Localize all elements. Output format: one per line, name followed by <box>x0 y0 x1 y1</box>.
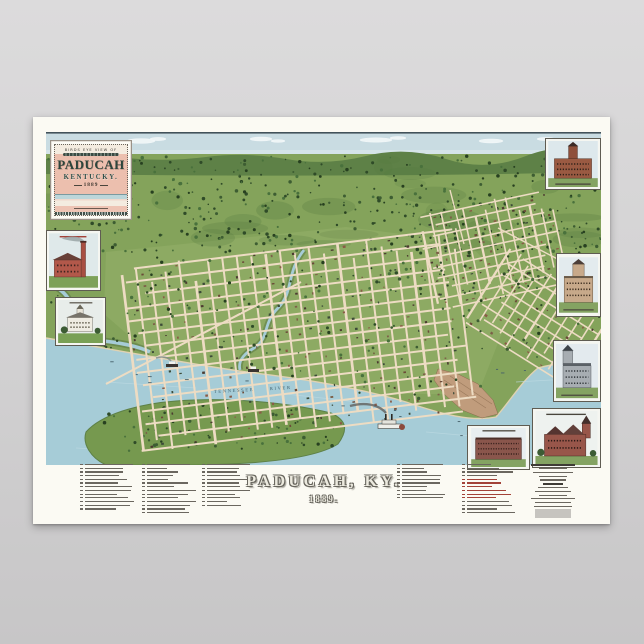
legend-entry <box>80 479 138 480</box>
map-title-year: 1889. <box>229 494 419 504</box>
legend-entry <box>397 475 445 476</box>
legend-entry <box>202 479 250 480</box>
school-engraving <box>548 141 598 187</box>
cartouche-bead-border <box>55 212 127 216</box>
map-title-city: PADUCAH, KY. <box>229 473 419 491</box>
cartouche-subtitle: KENTUCKY. <box>64 174 119 181</box>
legend-entry <box>462 482 520 483</box>
legend-entry <box>522 498 584 499</box>
cartouche-year: 1889 <box>74 182 109 188</box>
legend-entry <box>462 497 520 498</box>
legend-entry <box>80 464 138 465</box>
legend-entry <box>397 482 445 483</box>
legend-entry <box>202 482 250 483</box>
legend-entry <box>202 468 250 469</box>
legend-entry <box>142 464 200 465</box>
legend-entry <box>522 479 584 480</box>
legend-entry <box>462 501 520 502</box>
title-cartouche: BIRDS EYE VIEW OF PADUCAH KENTUCKY. 1889 <box>50 140 132 220</box>
legend-column-3 <box>202 464 250 520</box>
inset-building-with-mansard-tower <box>556 253 601 317</box>
legend-entry <box>202 471 250 472</box>
photo-backdrop: TENNESSEE RIVER BIRDS EYE VIEW OF PADUCA… <box>0 0 644 644</box>
legend-entry <box>80 475 138 476</box>
legend-entry <box>80 471 138 472</box>
legend-entry <box>202 494 250 495</box>
legend-entry <box>142 501 200 502</box>
legend-entry <box>397 497 445 498</box>
map-border-top <box>46 132 601 134</box>
inset-brick-school-with-tower <box>545 138 601 190</box>
legend-column-1 <box>80 464 138 520</box>
map-poster: TENNESSEE RIVER BIRDS EYE VIEW OF PADUCA… <box>33 117 610 524</box>
legend-entry <box>522 491 584 492</box>
legend-entry <box>142 494 200 495</box>
legend-entry <box>462 508 520 509</box>
legend-entry <box>522 468 584 469</box>
factory-engraving <box>49 233 98 288</box>
legend-entry <box>522 502 584 503</box>
legend-entry <box>202 501 250 502</box>
spire-building-engraving <box>556 343 598 399</box>
legend-entry <box>80 501 138 502</box>
legend-entry <box>462 505 520 506</box>
year-flourish-left <box>74 185 82 186</box>
legend-entry <box>80 468 138 469</box>
legend-entry <box>202 475 250 476</box>
legend-entry <box>142 471 200 472</box>
legend-entry <box>462 471 520 472</box>
publisher-imprint-block <box>535 509 571 518</box>
legend-entry <box>80 505 138 506</box>
legend-entry <box>462 494 520 495</box>
legend-entry <box>202 505 250 506</box>
legend-entry <box>80 486 138 487</box>
legend-entry <box>142 497 200 498</box>
legend-entry <box>142 468 200 469</box>
legend-entry <box>462 486 520 487</box>
legend-entry <box>80 497 138 498</box>
year-flourish-right <box>100 185 108 186</box>
cartouche-panel: BIRDS EYE VIEW OF PADUCAH KENTUCKY. 1889 <box>54 144 128 216</box>
legend-entry <box>522 476 584 477</box>
legend-entry <box>142 505 200 506</box>
legend-entry <box>397 464 445 465</box>
legend-entry <box>462 490 520 491</box>
legend-entry <box>397 479 445 480</box>
legend-entry <box>462 475 520 476</box>
cartouche-blue-band <box>55 194 127 199</box>
legend-entry <box>522 487 584 488</box>
legend-entry <box>142 475 200 476</box>
legend-entry <box>397 471 445 472</box>
legend-column-4 <box>397 464 445 520</box>
legend-entry <box>522 495 584 496</box>
brick-block-engraving <box>470 428 527 467</box>
cartouche-kicker: BIRDS EYE VIEW OF <box>65 148 117 152</box>
legend-entry <box>142 486 200 487</box>
legend-entry <box>522 483 584 485</box>
legend-entry <box>462 479 520 480</box>
legend-entry <box>202 464 250 465</box>
legend-entry <box>202 486 250 487</box>
cartouche-title: PADUCAH <box>57 157 125 172</box>
legend-entry <box>202 490 250 491</box>
legend-entry <box>522 506 584 507</box>
garland-ornament <box>63 153 119 156</box>
legend-entry <box>80 494 138 495</box>
inset-brick-factory-with-smokestack <box>46 230 101 291</box>
legend-entry <box>462 512 520 513</box>
legend-entry <box>397 494 445 495</box>
legend-column-2 <box>142 464 200 520</box>
mansion-engraving <box>535 411 598 465</box>
legend-entry <box>462 468 520 469</box>
legend-entry <box>142 479 200 480</box>
legend-entry <box>142 482 200 483</box>
legend-entry <box>142 512 200 513</box>
legend-column-5 <box>462 464 520 520</box>
legend-entry <box>80 482 138 483</box>
legend-entry <box>397 490 445 491</box>
inset-victorian-mansion-with-turret <box>532 408 601 468</box>
legend-entry <box>397 486 445 487</box>
legend-entry <box>80 508 138 509</box>
inset-gray-building-with-corner-spire <box>553 340 601 402</box>
courthouse-engraving <box>58 300 103 343</box>
legend-entry <box>142 508 200 509</box>
legend-entry <box>397 468 445 469</box>
map-title-block: PADUCAH, KY. 1889. <box>229 473 419 504</box>
legend-column-6 <box>522 464 584 520</box>
legend-entry <box>202 497 250 498</box>
inset-courthouse-with-cupola <box>55 297 106 346</box>
imprint-line <box>74 208 108 209</box>
legend-entry <box>522 464 584 466</box>
legend-entry <box>142 490 200 491</box>
legend-entry <box>462 464 520 465</box>
legend-entry <box>80 490 138 491</box>
mansard-building-engraving <box>559 256 598 314</box>
legend-entry <box>522 472 584 473</box>
